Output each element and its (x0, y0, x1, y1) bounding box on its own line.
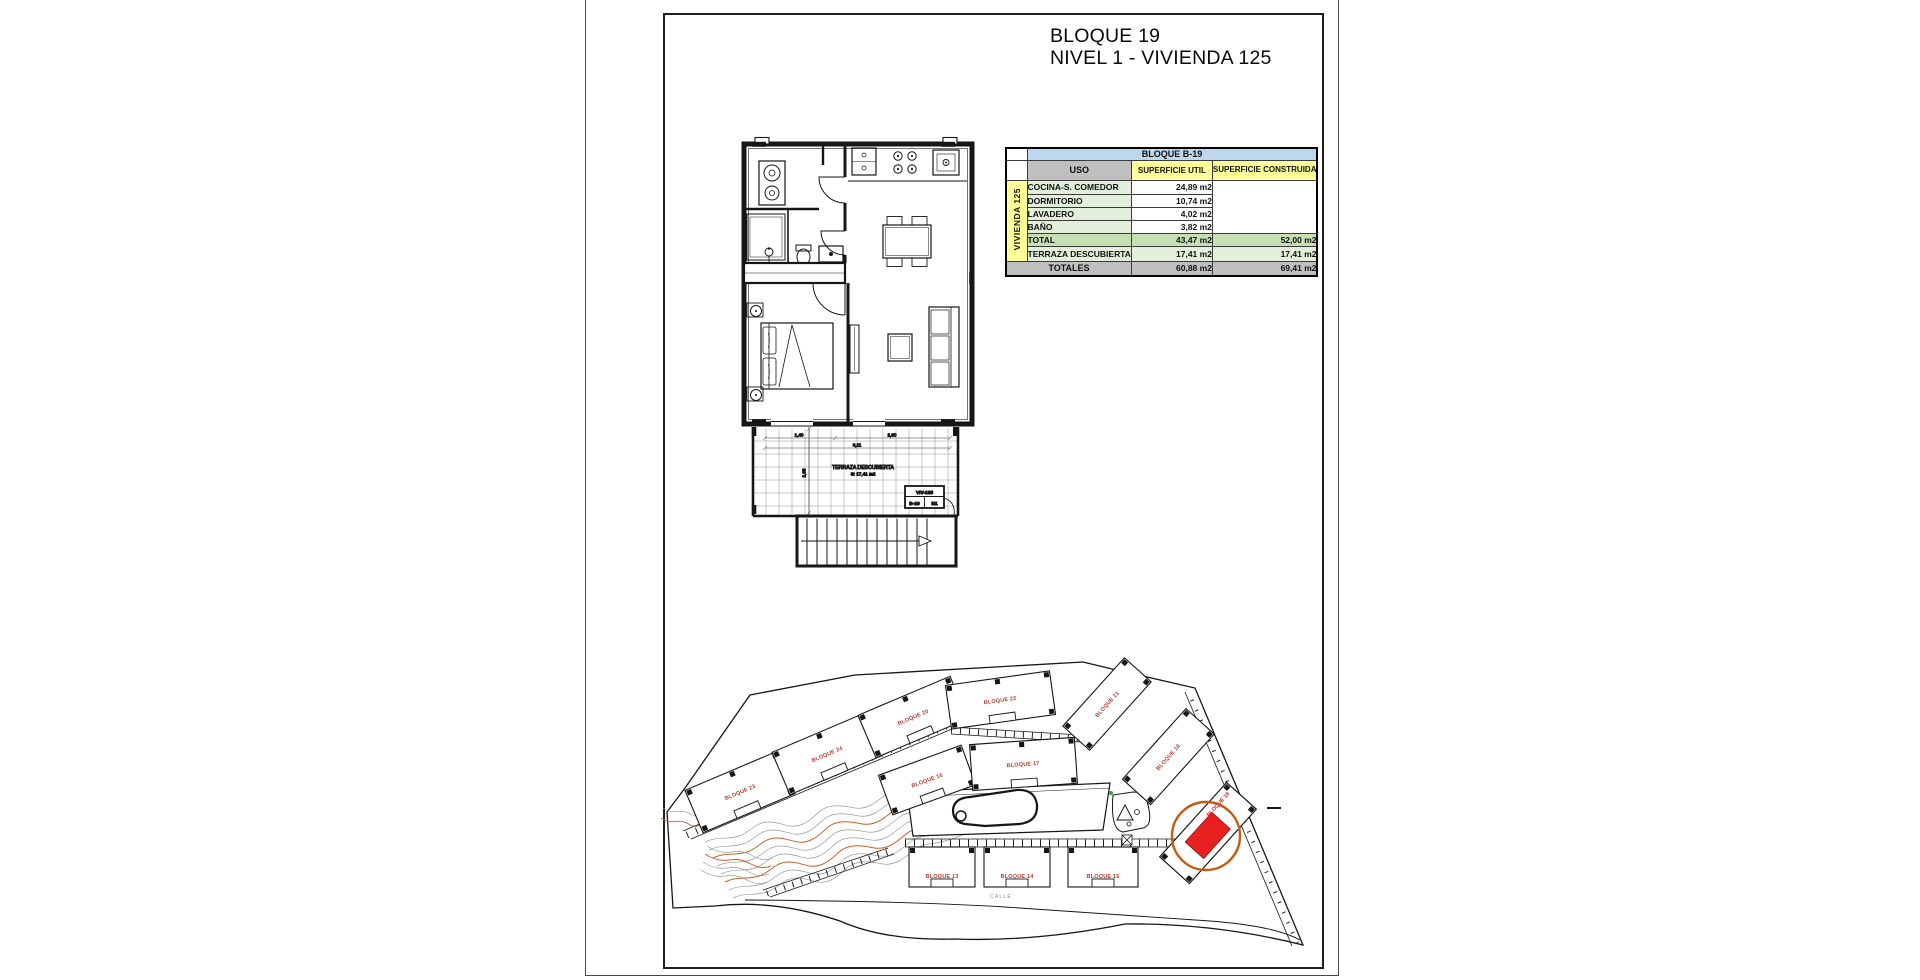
table-row: BLOQUE B-19 (1006, 148, 1317, 160)
col-header-util: SUPERFICIE UTIL (1131, 160, 1212, 180)
total-construida: 52,00 m2 (1212, 233, 1317, 246)
room-name: DORMITORIO (1027, 194, 1131, 207)
total-util: 43,47 m2 (1131, 233, 1212, 246)
site-block: BLOQUE 17 (970, 737, 1078, 790)
drawing-sheet-page: BLOQUE 19 NIVEL 1 - VIVIENDA 125 BLOQUE … (0, 0, 1920, 980)
x-box (1122, 835, 1132, 845)
block-label: BLOQUE 15 (1087, 874, 1120, 880)
site-plan-drawing: BLOQUE 23 BLOQUE 24 BLOQUE 20 BLOQUE 22 (655, 640, 1355, 970)
totals-label: TOTALES (1006, 261, 1131, 276)
terrace: 1,40 2,80 6,11 2,85 TERRAZA DESCUBIERTA … (752, 427, 958, 566)
table-row-terrace: TERRAZA DESCUBIERTA 17,41 m2 17,41 m2 (1006, 246, 1317, 261)
surface-area-table: BLOQUE B-19 USO SUPERFICIE UTIL SUPERFIC… (1005, 147, 1318, 277)
table-block-header: BLOQUE B-19 (1027, 148, 1317, 160)
site-block: BLOQUE 15 (1068, 847, 1138, 887)
totals-util: 60,88 m2 (1131, 261, 1212, 276)
terrace-label: TERRAZA DESCUBIERTA (1027, 246, 1131, 261)
apartment-walls (742, 138, 974, 431)
unit-tag-level: N1 (931, 501, 937, 507)
bedroom-window (771, 418, 813, 430)
dim-left: 1,40 (795, 433, 804, 438)
dim-depth: 2,85 (802, 468, 807, 477)
terrace-util: 17,41 m2 (1131, 246, 1212, 261)
room-util: 10,74 m2 (1131, 194, 1212, 207)
table-row: VIVIENDA 125 COCINA-S. COMEDOR 24,89 m2 (1006, 180, 1317, 194)
site-block: BLOQUE 14 (984, 847, 1050, 887)
room-util: 24,89 m2 (1131, 180, 1212, 194)
title-line-1: BLOQUE 19 (1050, 26, 1272, 48)
block-label: BLOQUE 13 (926, 874, 959, 880)
room-util: 4,02 m2 (1131, 207, 1212, 220)
vivienda-label-cell: VIVIENDA 125 (1006, 180, 1027, 261)
room-name: BAÑO (1027, 220, 1131, 233)
spacer-cell (1006, 160, 1027, 180)
unit-id-box: VIV-125 B-19 N1 (905, 486, 954, 516)
construida-merged-cell (1212, 180, 1317, 233)
site-block: BLOQUE 13 (909, 847, 975, 887)
floor-plan-drawing: 1,40 2,80 6,11 2,85 TERRAZA DESCUBIERTA … (735, 135, 985, 595)
col-header-uso: USO (1027, 160, 1131, 180)
totals-construida: 69,41 m2 (1212, 261, 1317, 276)
title-line-2: NIVEL 1 - VIVIENDA 125 (1050, 48, 1272, 70)
dim-right: 2,80 (888, 433, 897, 438)
street-label: CALLE (990, 894, 1012, 900)
vivienda-label: VIVIENDA 125 (1012, 188, 1022, 250)
terrace-plan-label: TERRAZA DESCUBIERTA (832, 465, 894, 471)
plan-title: BLOQUE 19 NIVEL 1 - VIVIENDA 125 (1050, 26, 1272, 70)
room-name: LAVADERO (1027, 207, 1131, 220)
terrace-construida: 17,41 m2 (1212, 246, 1317, 261)
dim-total: 6,11 (853, 443, 862, 448)
total-label: TOTAL (1027, 233, 1131, 246)
room-name: COCINA-S. COMEDOR (1027, 180, 1131, 194)
room-util: 3,82 m2 (1131, 220, 1212, 233)
terrace-plan-area: S: 17,41 m2 (851, 472, 876, 477)
spacer-cell (1006, 148, 1027, 160)
table-row: USO SUPERFICIE UTIL SUPERFICIE CONSTRUID… (1006, 160, 1317, 180)
unit-tag-id: VIV-125 (916, 490, 933, 496)
terrace-door (853, 418, 885, 430)
unit-tag-block: B-19 (909, 501, 920, 507)
tree-dot (1109, 791, 1113, 795)
table-row-totals: TOTALES 60,88 m2 69,41 m2 (1006, 261, 1317, 276)
col-header-construida: SUPERFICIE CONSTRUIDA (1212, 160, 1317, 180)
block-label: BLOQUE 14 (1001, 874, 1035, 880)
stairs (797, 516, 956, 566)
table-row-total: TOTAL 43,47 m2 52,00 m2 (1006, 233, 1317, 246)
